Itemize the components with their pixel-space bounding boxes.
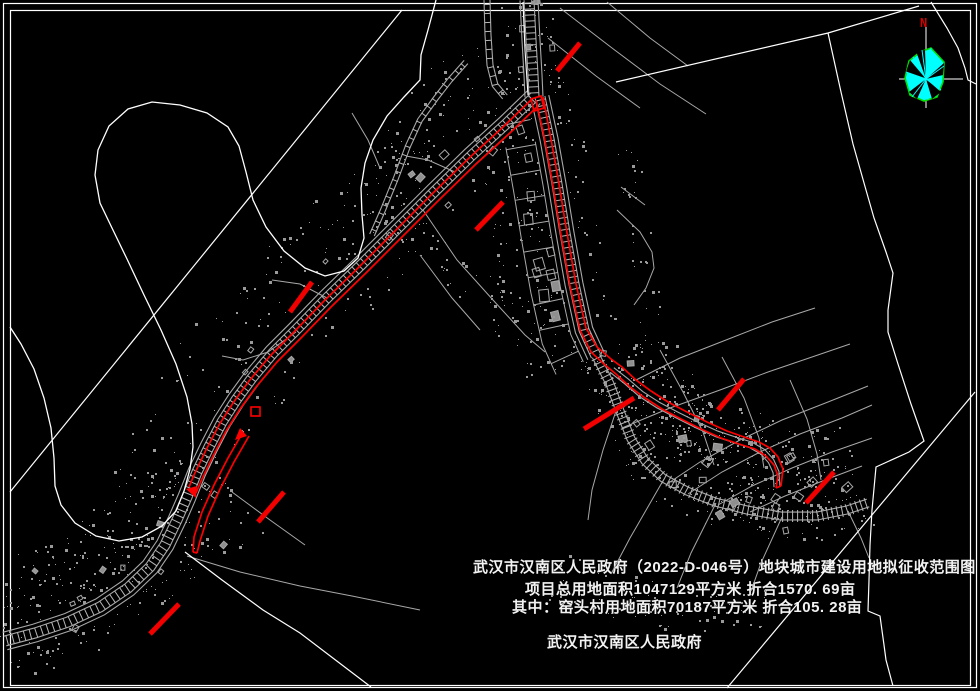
title-line-village-area: 其中：窑头村用地面积70187平方米 折合105. 28亩 bbox=[512, 596, 862, 617]
cad-map-sheet: 武汉市汉南区人民政府（2022-D-046号）地块城市建设用地拟征收范围图 项目… bbox=[0, 0, 980, 691]
title-block: 武汉市汉南区人民政府（2022-D-046号）地块城市建设用地拟征收范围图 项目… bbox=[0, 0, 980, 691]
title-signature: 武汉市汉南区人民政府 bbox=[547, 631, 702, 652]
title-line-main: 武汉市汉南区人民政府（2022-D-046号）地块城市建设用地拟征收范围图 bbox=[473, 556, 976, 577]
